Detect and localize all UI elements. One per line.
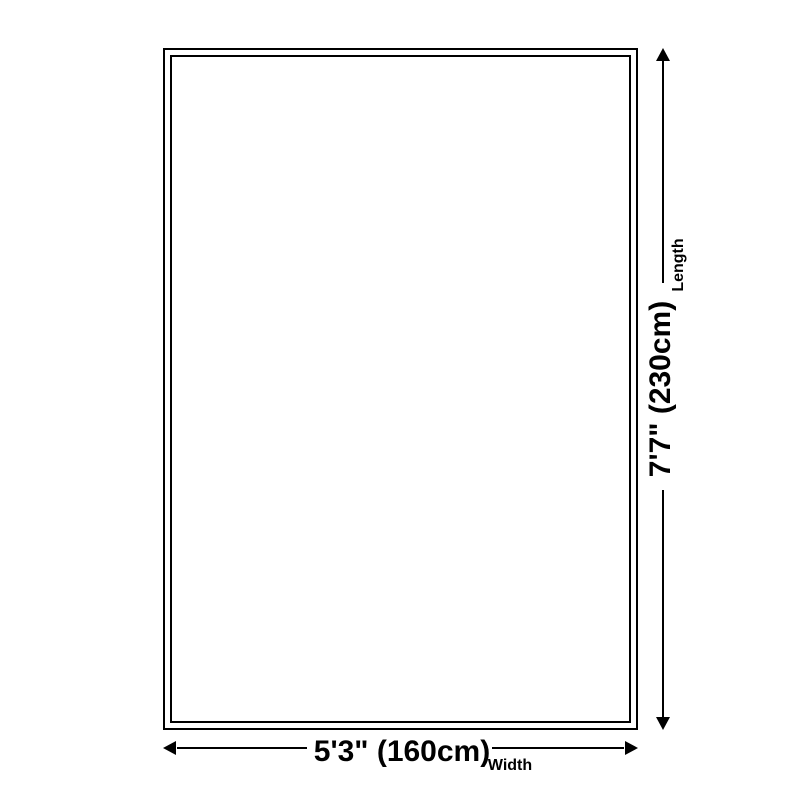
arrow-left-icon — [163, 741, 176, 755]
width-arrow-right-segment — [492, 747, 624, 749]
width-arrow-left-segment — [177, 747, 307, 749]
length-label: Length — [671, 238, 687, 291]
rug-outline — [163, 48, 638, 730]
rug-inner-outline — [170, 55, 631, 723]
length-arrow-top-segment — [662, 60, 664, 283]
size-diagram: 7'7" (230cm) Length 5'3" (160cm) Width — [0, 0, 800, 800]
width-value: 5'3" (160cm) — [314, 737, 490, 767]
length-value: 7'7" (230cm) — [646, 301, 676, 477]
width-label: Width — [488, 758, 532, 774]
arrow-right-icon — [625, 741, 638, 755]
arrow-down-icon — [656, 717, 670, 730]
length-arrow-bottom-segment — [662, 490, 664, 717]
